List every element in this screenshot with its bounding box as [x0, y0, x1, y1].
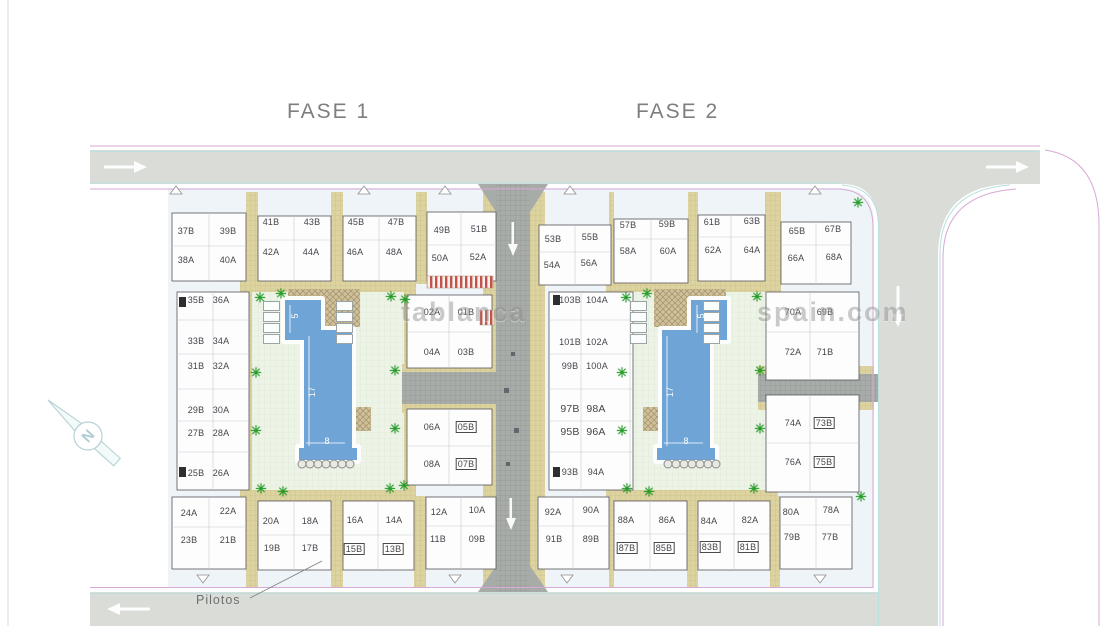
watermark-text-left: tablanca [401, 297, 527, 328]
phase-2-title: FASE 2 [636, 100, 719, 124]
watermark-text-right: spain.com [757, 297, 909, 328]
site-plan-drawing: N [0, 0, 1110, 626]
north-compass-icon: N [39, 389, 127, 472]
phase-1-title: FASE 1 [287, 100, 370, 124]
site-plan-canvas: N 37B39B38A40A41B43B42A44A45B47B46A48A49… [0, 0, 1110, 626]
pilotos-label: Pilotos [196, 593, 241, 607]
